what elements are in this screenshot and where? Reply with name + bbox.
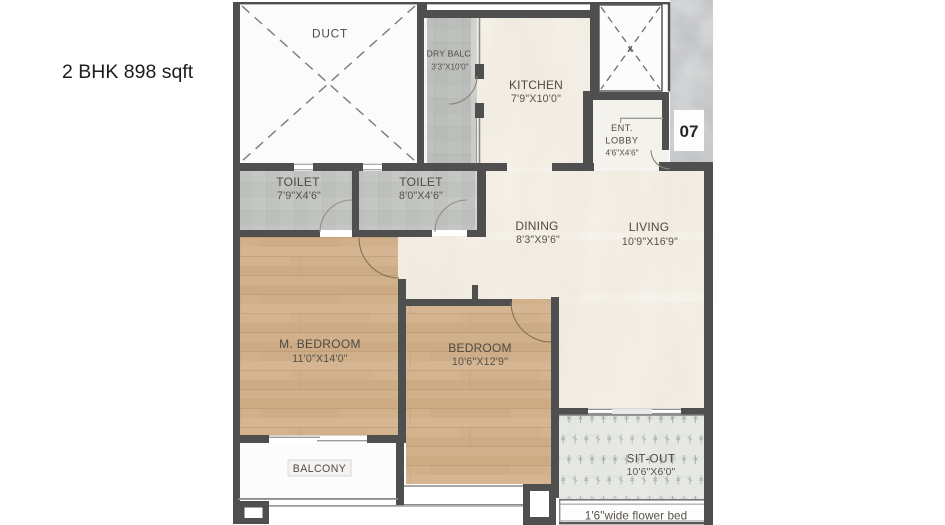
svg-text:LIVING: LIVING	[629, 220, 670, 234]
svg-text:LOBBY: LOBBY	[605, 136, 638, 146]
svg-text:x: x	[628, 44, 633, 54]
svg-text:DRY BALC.: DRY BALC.	[427, 49, 474, 59]
svg-text:10'9"X16'9": 10'9"X16'9"	[622, 236, 678, 248]
svg-text:BEDROOM: BEDROOM	[448, 341, 511, 355]
svg-text:8'3"X9'6": 8'3"X9'6"	[516, 234, 560, 246]
svg-text:DUCT: DUCT	[312, 27, 348, 41]
svg-text:7'9"X10'0": 7'9"X10'0"	[511, 93, 561, 105]
svg-text:TOILET: TOILET	[399, 175, 443, 189]
svg-text:SIT-OUT: SIT-OUT	[627, 454, 676, 466]
svg-text:8'0"X4'6": 8'0"X4'6"	[399, 190, 443, 202]
svg-text:M. BEDROOM: M. BEDROOM	[279, 337, 361, 351]
svg-text:KITCHEN: KITCHEN	[509, 78, 563, 92]
svg-text:4'6"X4'6": 4'6"X4'6"	[605, 148, 638, 158]
svg-text:BALCONY: BALCONY	[293, 463, 346, 475]
svg-text:07: 07	[680, 122, 699, 141]
svg-text:3'3"X10'0": 3'3"X10'0"	[431, 63, 468, 72]
svg-text:11'0"X14'0": 11'0"X14'0"	[292, 353, 347, 365]
svg-text:10'6"X12'9": 10'6"X12'9"	[452, 356, 508, 368]
svg-text:2 BHK 898 sqft: 2 BHK 898 sqft	[62, 61, 194, 83]
svg-text:7'9"X4'6": 7'9"X4'6"	[277, 190, 321, 202]
svg-text:TOILET: TOILET	[276, 175, 320, 189]
svg-text:10'6"X6'0": 10'6"X6'0"	[627, 467, 676, 478]
svg-text:DINING: DINING	[515, 219, 558, 233]
svg-text:1'6"wide flower bed: 1'6"wide flower bed	[585, 510, 688, 523]
svg-text:ENT.: ENT.	[611, 123, 633, 133]
